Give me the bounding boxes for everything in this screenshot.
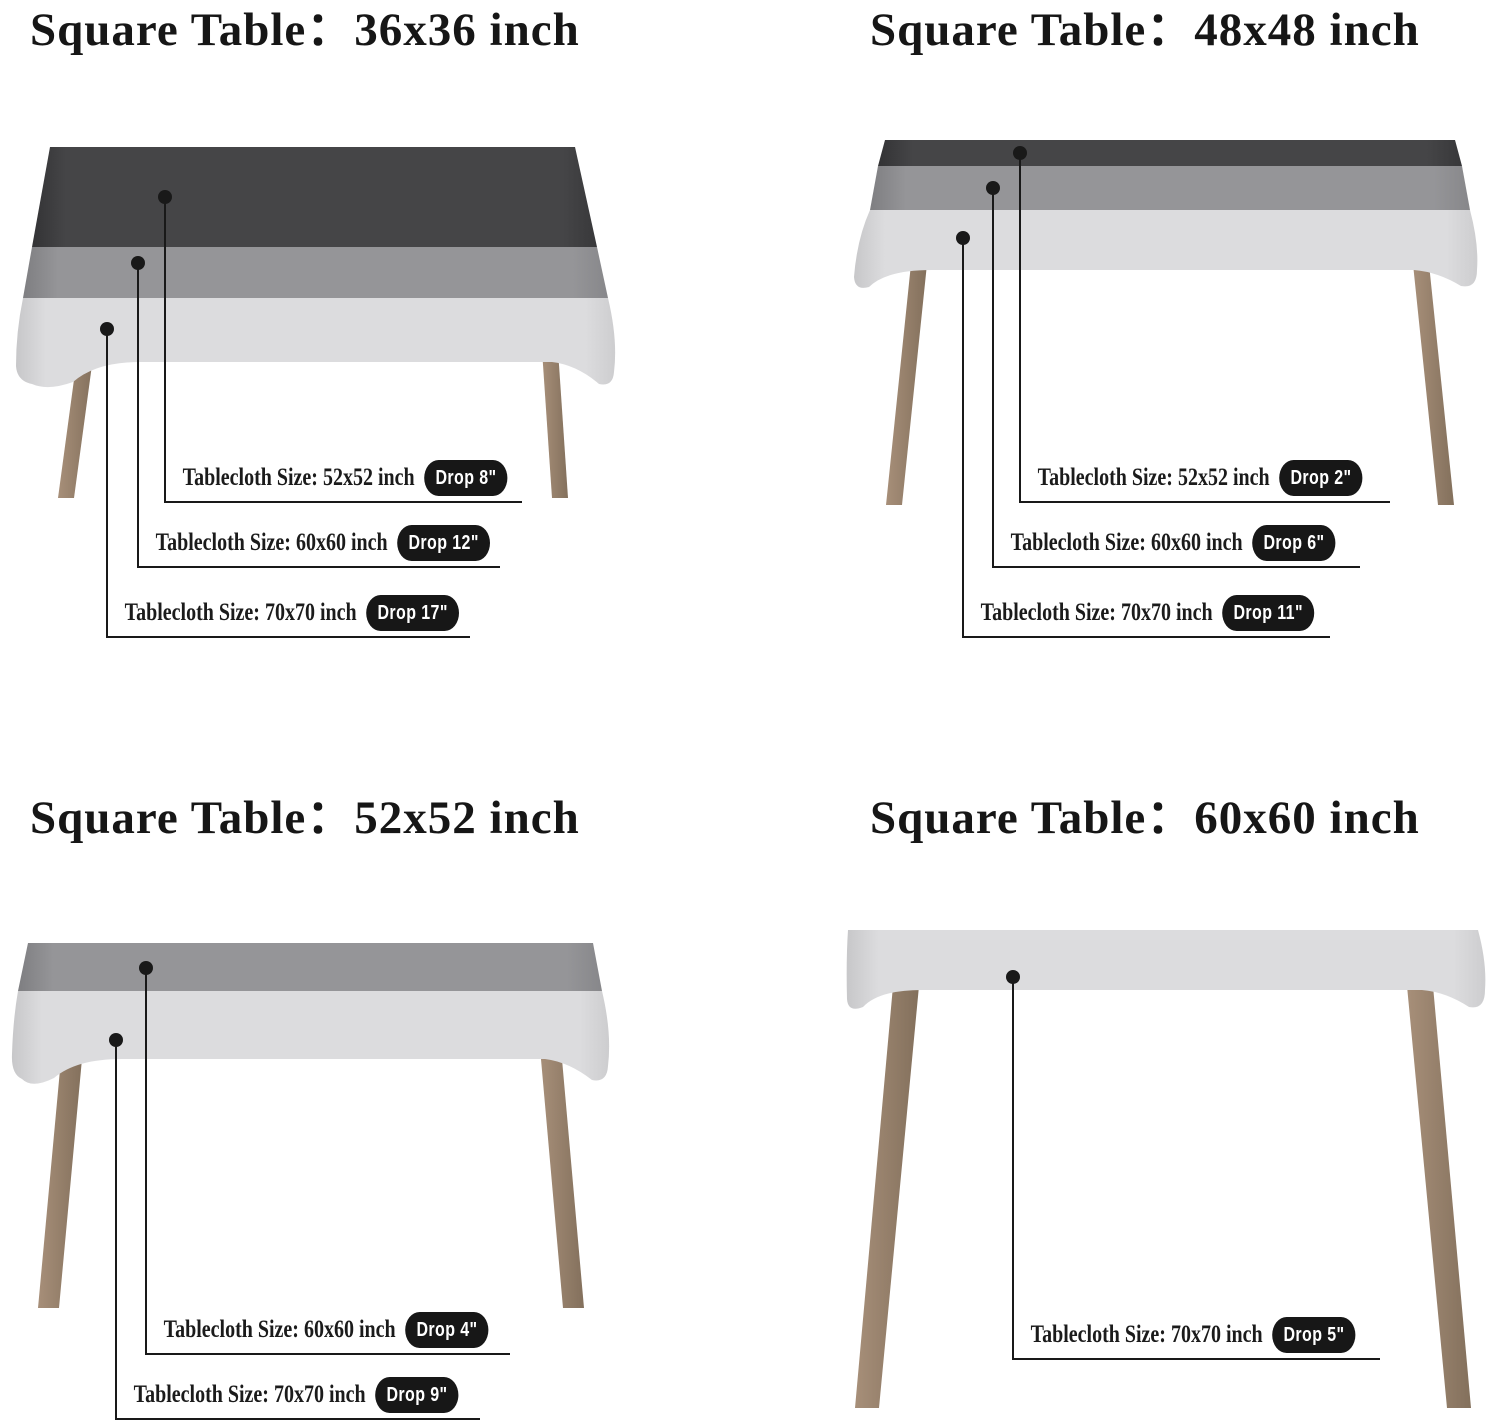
table-illustration-52x52 bbox=[12, 943, 609, 1308]
callout-row: Tablecloth Size: 60x60 inch Drop 12" bbox=[138, 520, 500, 568]
quadrant-title-52x52: Square Table：52x52 inch bbox=[30, 788, 580, 848]
tablecloth-size-label: Tablecloth Size: 60x60 inch bbox=[1011, 529, 1243, 557]
tablecloth-layer-52x52 bbox=[878, 140, 1462, 166]
drop-badge: Drop 2" bbox=[1279, 460, 1362, 496]
callout-row: Tablecloth Size: 60x60 inch Drop 4" bbox=[146, 1307, 510, 1355]
table-leg-right bbox=[540, 1048, 584, 1308]
callout-row: Tablecloth Size: 70x70 inch Drop 17" bbox=[107, 590, 470, 638]
table-illustration-48x48 bbox=[854, 140, 1477, 505]
tablecloth-layer-60x60 bbox=[870, 166, 1470, 210]
table-leg-right bbox=[1407, 986, 1471, 1408]
drop-badge: Drop 12" bbox=[397, 525, 490, 561]
tables-illustration bbox=[0, 0, 1500, 1426]
quadrant-title-60x60: Square Table：60x60 inch bbox=[870, 788, 1420, 848]
tablecloth-size-label: Tablecloth Size: 60x60 inch bbox=[156, 529, 388, 557]
drop-badge: Drop 5" bbox=[1272, 1317, 1355, 1353]
tablecloth-size-label: Tablecloth Size: 70x70 inch bbox=[1031, 1321, 1263, 1349]
table-leg-right bbox=[542, 350, 568, 498]
callout-row: Tablecloth Size: 70x70 inch Drop 5" bbox=[1013, 1312, 1380, 1360]
tablecloth-size-label: Tablecloth Size: 60x60 inch bbox=[164, 1316, 396, 1344]
leader-line bbox=[1012, 977, 1014, 1360]
callout-row: Tablecloth Size: 70x70 inch Drop 11" bbox=[963, 590, 1330, 638]
tablecloth-layer-70x70 bbox=[847, 930, 1486, 1009]
quadrant-title-36x36: Square Table：36x36 inch bbox=[30, 0, 580, 60]
tablecloth-layer-60x60 bbox=[18, 943, 602, 991]
callout-row: Tablecloth Size: 70x70 inch Drop 9" bbox=[116, 1372, 480, 1420]
tablecloth-size-label: Tablecloth Size: 52x52 inch bbox=[1038, 464, 1270, 492]
table-leg-left bbox=[855, 986, 919, 1408]
drop-badge: Drop 11" bbox=[1222, 595, 1314, 631]
callout-row: Tablecloth Size: 52x52 inch Drop 8" bbox=[165, 455, 522, 503]
drop-badge: Drop 6" bbox=[1252, 525, 1335, 561]
tablecloth-size-label: Tablecloth Size: 52x52 inch bbox=[183, 464, 415, 492]
tablecloth-size-label: Tablecloth Size: 70x70 inch bbox=[981, 599, 1213, 627]
leader-line bbox=[992, 188, 994, 568]
leader-line bbox=[115, 1040, 117, 1420]
callout-row: Tablecloth Size: 60x60 inch Drop 6" bbox=[993, 520, 1360, 568]
table-leg-left bbox=[38, 1048, 83, 1308]
drop-badge: Drop 17" bbox=[366, 595, 459, 631]
drop-badge: Drop 8" bbox=[424, 460, 507, 496]
quadrant-title-48x48: Square Table：48x48 inch bbox=[870, 0, 1420, 60]
leader-line bbox=[1019, 153, 1021, 503]
drop-badge: Drop 4" bbox=[405, 1312, 488, 1348]
leader-line bbox=[145, 968, 147, 1355]
tablecloth-layer-70x70 bbox=[12, 991, 609, 1084]
leader-line bbox=[962, 238, 964, 638]
tablecloth-layer-60x60 bbox=[23, 247, 608, 298]
tablecloth-layer-52x52 bbox=[32, 147, 597, 247]
tablecloth-layer-70x70 bbox=[854, 210, 1477, 288]
table-leg-right bbox=[1413, 264, 1454, 505]
tablecloth-size-label: Tablecloth Size: 70x70 inch bbox=[125, 599, 357, 627]
tablecloth-size-label: Tablecloth Size: 70x70 inch bbox=[134, 1381, 366, 1409]
table-leg-left bbox=[886, 264, 927, 505]
size-guide-infographic: Square Table：36x36 inch Square Table：48x… bbox=[0, 0, 1500, 1426]
callout-row: Tablecloth Size: 52x52 inch Drop 2" bbox=[1020, 455, 1390, 503]
drop-badge: Drop 9" bbox=[375, 1377, 458, 1413]
